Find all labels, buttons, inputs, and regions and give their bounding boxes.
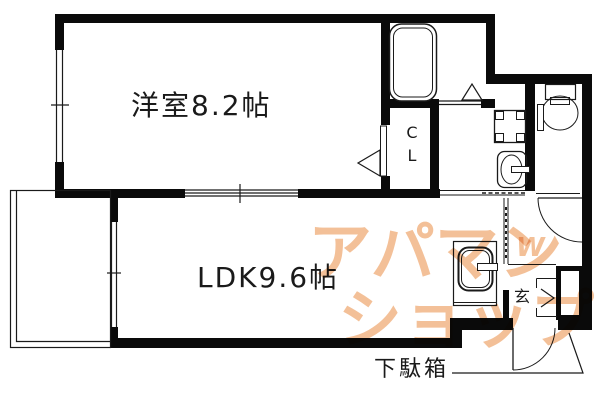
watermark-line2: ショップ bbox=[338, 289, 594, 353]
washing-machine-pan-icon bbox=[495, 111, 526, 143]
balcony-outer-rail bbox=[11, 191, 111, 348]
western-room-label: 洋室8.2帖 bbox=[131, 84, 272, 124]
wall-closet-right bbox=[430, 99, 439, 198]
bath-door-triangle-icon bbox=[462, 84, 482, 100]
toilet-side-panel bbox=[538, 105, 544, 131]
washer-pan-corner bbox=[496, 112, 504, 120]
washer-pan-corner bbox=[517, 134, 525, 142]
wall-left-upper bbox=[55, 14, 64, 50]
watermark-monogram: W bbox=[516, 235, 545, 261]
washroom bbox=[440, 111, 530, 196]
bedroom-door-triangle-icon bbox=[358, 150, 380, 176]
wall-top-main bbox=[55, 14, 495, 23]
bedroom-door bbox=[358, 126, 387, 176]
bedroom-door-panel bbox=[381, 126, 387, 176]
wall-bath-bottom-stub bbox=[481, 99, 495, 108]
closet-label: C L bbox=[400, 121, 424, 167]
toilet-lid bbox=[551, 98, 570, 105]
bathtub-icon bbox=[390, 24, 437, 101]
closet-letter-c: C bbox=[406, 121, 417, 144]
bathroom bbox=[390, 24, 483, 105]
wall-bedroom-right-upper bbox=[381, 14, 390, 125]
balcony-inner-rail bbox=[17, 191, 111, 342]
washer-pan-corner bbox=[517, 112, 525, 120]
floorplan-canvas: 洋室8.2帖 LDK9.6帖 C L 玄 下駄箱 アパマン ショップ W bbox=[0, 0, 600, 400]
wall-top-right bbox=[486, 74, 592, 84]
washer-pan-corner bbox=[496, 134, 504, 142]
wall-ldk-left-upper bbox=[110, 192, 118, 222]
wall-ldk-top bbox=[298, 189, 440, 198]
wall-bedroom-right-lower bbox=[381, 176, 390, 198]
wall-step-vertical bbox=[486, 14, 495, 80]
wash-basin-faucet bbox=[512, 167, 530, 173]
balcony bbox=[11, 191, 111, 348]
toilet-icon bbox=[542, 96, 578, 130]
closet-letter-l: L bbox=[408, 144, 417, 167]
